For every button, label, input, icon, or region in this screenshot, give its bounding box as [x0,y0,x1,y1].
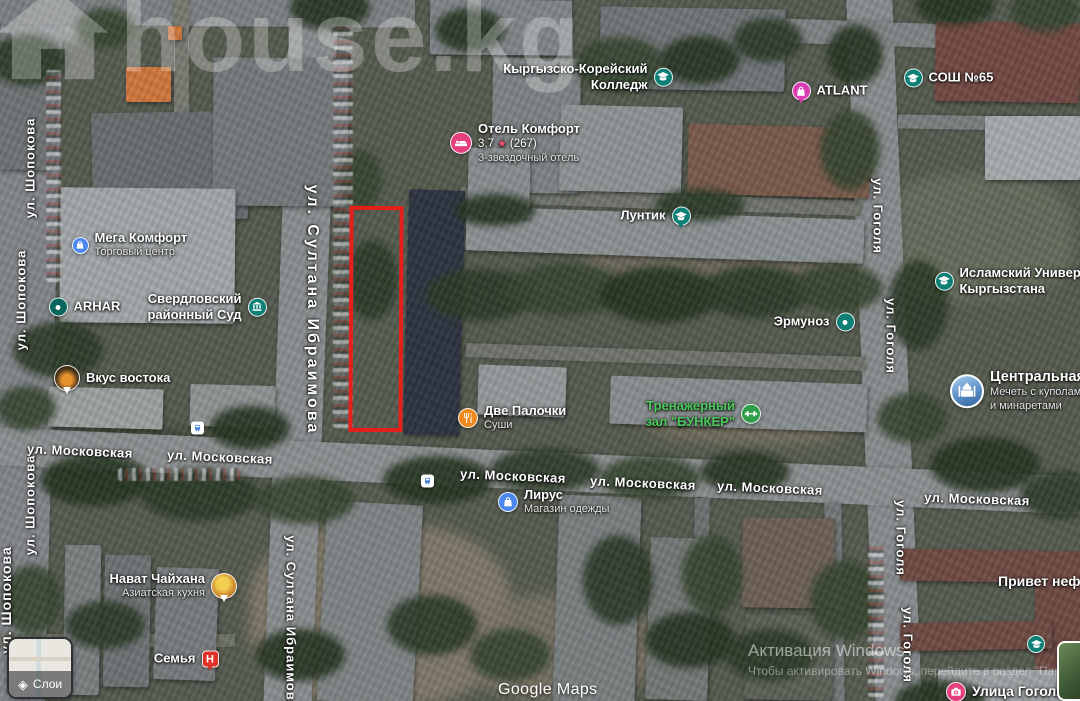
poi-sverdlovsky-court[interactable]: Свердловскийрайонный Суд [0,291,267,324]
poi-text-block: ЛирусМагазин одежды [524,487,609,517]
road [672,15,1080,54]
poi-text-block: Семья [154,651,196,667]
poi-ulitsa-gogolya[interactable]: Улица Гоголя [946,682,1064,701]
poi-label: СОШ №65 [929,70,994,86]
trees [827,25,883,85]
poi-text-block: Вкус востока [86,370,170,386]
bed-icon [450,132,472,154]
poi-ermunoz[interactable]: Эрмуноз [515,313,855,332]
terrain-patch [250,525,510,701]
building [212,57,348,206]
trees [1010,0,1080,32]
fork-knife-icon [458,408,478,428]
camera-icon [946,682,966,701]
poi-text-block: Центральная МечетьМечеть с куполамии мин… [990,368,1080,414]
poi-text-block: Улица Гоголя [972,683,1064,701]
trees [210,406,290,450]
poi-luntik[interactable]: Лунтик [351,207,691,226]
street-label: ул. Московская [27,441,133,461]
trees [930,437,1040,493]
poi-label: Улица Гоголя [972,683,1064,701]
google-maps-watermark: Google Maps [498,681,598,699]
road [0,0,415,28]
building [744,614,833,701]
poi-label: ATLANT [817,83,868,99]
letter-h-icon: Н [202,651,219,668]
street-label: ул. Шопокова [23,118,38,219]
terrain-patch [584,227,876,295]
trees [435,8,505,52]
shopping-bag-icon [498,492,518,512]
trees [583,535,653,625]
trees [75,8,135,48]
poi-mega-komfort[interactable]: Мега КомфортТорговый центр [72,230,188,260]
road [573,496,594,701]
trees [490,448,600,492]
street-label: ул. Гоголя [894,500,909,576]
trees [682,535,742,615]
pin-tip [63,387,71,398]
poi-bus-stop-1[interactable] [191,422,204,435]
windows-activation-watermark: Активация Windows [748,641,905,661]
poi-text-block: Кыргызско-КорейскийКолледж [503,61,647,94]
street-label: ул. Гоголя [901,607,916,683]
street-label: ул. Султана Ибраимова [284,535,299,701]
poi-label: Две Палочки [484,403,566,419]
poi-label: Отель Комфорт [478,121,580,137]
mosque-icon [950,374,984,408]
poi-sublabel: Мечеть с куполами [990,386,1080,400]
trees [1020,471,1080,519]
selection-rectangle [348,206,403,432]
poi-central-mosque[interactable]: Центральная МечетьМечеть с куполамии мин… [950,368,1080,414]
street-label: ул. Шопокова [23,455,38,556]
poi-label: Вкус востока [86,370,170,386]
poi-text-block: Исламский УниверситетКыргызстана [960,265,1080,298]
poi-lirus[interactable]: ЛирусМагазин одежды [498,487,609,517]
bank-icon [248,298,267,317]
trees [810,560,880,640]
shopping-bag-icon [792,82,811,101]
trees [915,0,995,25]
photo-preview-card[interactable] [1057,641,1080,701]
building [985,116,1080,180]
star-icon: ★ [497,137,507,151]
poi-label: зал "БУНКЕР" [646,414,736,430]
poi-label: Эрмуноз [774,314,830,330]
pin-tip [677,222,685,233]
street-label: ул. Московская [167,447,273,467]
poi-text-block: Лунтик [620,208,665,224]
trees [793,264,883,312]
building [317,501,423,701]
poi-label: Тренажерный [646,398,735,414]
poi-hotel-komfort[interactable]: Отель Комфорт3,7★(267)3-звездочный отель [450,121,580,165]
layers-bar: ◈ Слои [9,671,71,697]
poi-label: районный Суд [147,307,241,323]
graduation-cap-icon [654,68,673,87]
poi-atlant[interactable]: ATLANT [792,82,868,101]
poi-text-block: ATLANT [817,83,868,99]
trees [700,452,790,492]
poi-vkus-vostoka[interactable]: Вкус востока [54,365,170,391]
trees [255,629,345,681]
rating-value: 3,7 [478,137,494,151]
satellite-map[interactable]: house.kg Активация Windows Чтобы активир… [0,0,1080,701]
graduation-cap-icon [1027,635,1045,653]
road [846,0,922,701]
trees [338,150,382,210]
poi-label: Мега Комфорт [95,230,188,246]
road [824,503,845,701]
poi-sublabel: Суши [484,419,566,433]
street-label: ул. Гоголя [884,298,899,374]
layers-label: Слои [33,677,62,691]
poi-text-block: Нават ЧайханаАзиатская кухня [109,571,205,601]
poi-rating: 3,7★(267) [478,137,580,151]
review-count: (267) [510,137,537,151]
trees [700,266,810,318]
poi-text-block: Привет неформ [998,573,1080,591]
building [741,517,835,609]
windows-activation-hint: Чтобы активировать Windows, перейдите в … [748,664,1068,678]
trees [0,386,56,430]
building [687,124,871,199]
road [466,343,866,371]
poi-text-block: Две ПалочкиСуши [484,403,566,433]
graduation-cap-icon [904,69,923,88]
building [126,67,171,102]
poi-text-block: Свердловскийрайонный Суд [147,291,241,324]
poi-text-block: Отель Комфорт3,7★(267)3-звездочный отель [478,121,580,165]
road [263,0,339,701]
poi-label: Лунтик [620,208,665,224]
building [552,495,641,701]
layers-icon: ◈ [18,678,28,691]
poi-text-block: Мега КомфортТорговый центр [95,230,188,260]
poi-sublabel: и минаретами [990,400,1080,414]
building [645,537,713,701]
terrain-patch [54,423,245,491]
building [934,21,1080,104]
street-label: ул. Московская [460,466,566,486]
shopping-bag-icon [72,237,89,254]
trees [40,454,150,506]
trees [255,476,355,524]
house-icon [0,0,118,103]
street-label: ул. Султана Ибраимова [303,185,321,436]
dumbbell-icon [741,404,761,424]
graduation-cap-icon [935,272,954,291]
pin-tip [797,97,805,108]
trees [725,629,815,681]
pin-tip [220,595,228,606]
parked-cars [868,545,884,697]
poi-school-poi[interactable] [1027,635,1045,653]
poi-sublabel: Азиатская кухня [122,587,205,601]
trees [733,18,803,62]
layers-button[interactable]: ◈ Слои [7,637,73,699]
poi-islamic-university[interactable]: Исламский УниверситетКыргызстана [935,265,1080,298]
bus-icon [191,422,204,435]
poi-label: Центральная Мечеть [990,368,1080,386]
road [691,498,710,701]
trees [346,240,398,320]
street-label: ул. Московская [717,478,823,498]
poi-label: Свердловский [148,291,242,307]
building [168,26,182,40]
poi-text-block: СОШ №65 [929,70,994,86]
trees [820,110,880,190]
poi-label: Лирус [524,487,609,503]
graduation-cap-icon [672,207,691,226]
poi-label: Привет неформ [998,573,1080,591]
trees [470,629,550,681]
trees [877,393,947,443]
poi-label: Нават Чайхана [109,571,205,587]
poi-label: Кыргызско-Корейский [503,61,647,77]
poi-bus-stop-2[interactable] [421,475,434,488]
building [91,111,248,222]
poi-kyrgyz-korean-college[interactable]: Кыргызско-КорейскийКолледж [333,61,673,94]
poi-sosh-65[interactable]: СОШ №65 [904,69,994,88]
terrain-patch [465,595,655,700]
poi-text-block: Эрмуноз [774,314,830,330]
poi-text-block: Тренажерныйзал "БУНКЕР" [646,398,736,431]
trees [0,34,66,86]
poi-sublabel: Магазин одежды [524,503,609,517]
poi-sublabel: Торговый центр [95,246,188,260]
trees [387,595,477,655]
building [0,42,56,171]
road [174,0,189,200]
vkus-vostoka-logo-icon [54,365,80,391]
navat-chaihana-logo-icon [211,573,237,599]
road [898,114,1080,131]
poi-label: Кыргызстана [960,281,1080,297]
building [430,0,572,56]
poi-navat-chaihana[interactable]: Нават ЧайханаАзиатская кухня [0,571,237,601]
poi-label: Колледж [591,77,648,93]
trees [290,0,370,30]
street-label: ул. Гоголя [871,178,886,254]
trees [505,264,625,316]
poi-sublabel: 3-звездочный отель [478,151,580,165]
poi-dve-palochki[interactable]: Две ПалочкиСуши [458,403,566,433]
poi-privet-neform[interactable]: Привет неформ [998,573,1080,591]
terrain-patch [0,0,95,42]
poi-label: Исламский Университет [960,265,1080,281]
bus-icon [421,475,434,488]
parked-cars [118,468,240,481]
street-label: ул. Московская [924,490,1030,509]
poi-label: Семья [154,651,196,667]
trees [383,456,493,504]
trees [600,456,700,500]
trees [140,469,260,521]
terrain-patch [0,325,62,430]
parked-cars [46,70,61,282]
trees [645,612,735,668]
dot-icon [836,313,855,332]
pin-tip [206,664,214,675]
trees [65,601,145,649]
